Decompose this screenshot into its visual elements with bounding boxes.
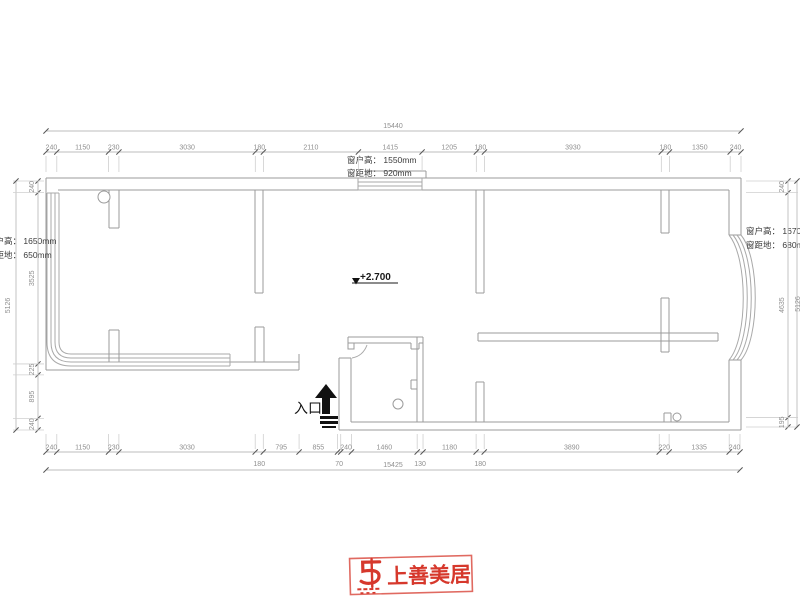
dimension-value: 1415 bbox=[382, 145, 398, 152]
dimension-value: 240 bbox=[46, 145, 58, 152]
elevation-triangle-icon bbox=[352, 278, 360, 285]
dimension-value: 4635 bbox=[779, 297, 786, 313]
elevation-marker: +2.700 bbox=[352, 272, 398, 285]
entrance-arrow-icon bbox=[315, 384, 337, 398]
dimension-value: 855 bbox=[312, 445, 324, 452]
dimension-value: 180 bbox=[475, 145, 487, 152]
dimension-value: 15425 bbox=[383, 462, 403, 469]
entrance-label: 入口 bbox=[294, 402, 322, 417]
window-annotations: 窗户高： 1550mm 窗距地： 920mm 窗户高： 1650mm 窗距地： … bbox=[0, 155, 800, 260]
dimension-value: 1205 bbox=[441, 145, 457, 152]
dimension-value: 15440 bbox=[383, 123, 403, 130]
entrance-marker: 入口 bbox=[294, 384, 338, 428]
floor-plan-drawing: 入口 +2.700 窗户高： 1550mm 窗距地： 920mm 窗户高： 16… bbox=[0, 0, 800, 600]
dimension-value: 180 bbox=[660, 145, 672, 152]
right-bow-window bbox=[729, 235, 755, 360]
dimension-value: 1150 bbox=[75, 145, 90, 152]
outer-walls bbox=[46, 171, 755, 430]
dimension-value: 230 bbox=[108, 145, 120, 152]
dimension-value: 795 bbox=[275, 445, 287, 452]
dimension-value: 240 bbox=[29, 418, 36, 430]
dimension-value: 895 bbox=[29, 391, 36, 403]
dimension-value: 240 bbox=[730, 145, 742, 152]
left-window-height-label: 窗户高： 1650mm bbox=[0, 236, 56, 246]
floor-plan-canvas: 入口 +2.700 窗户高： 1550mm 窗距地： 920mm 窗户高： 16… bbox=[0, 0, 800, 600]
logo-text: 上善美居 bbox=[387, 562, 472, 588]
logo-subtext-marks bbox=[357, 588, 379, 594]
right-window-sill-label: 窗距地： 680mm bbox=[746, 240, 800, 250]
dimension-value: 1335 bbox=[691, 445, 707, 452]
brand-logo: 上善美居 bbox=[350, 555, 473, 594]
dimension-value: 3030 bbox=[179, 445, 195, 452]
dimension-value: 3930 bbox=[565, 145, 581, 152]
dimension-value: 240 bbox=[29, 181, 36, 193]
dimension-value: 2110 bbox=[303, 145, 318, 152]
dimension-value: 240 bbox=[46, 445, 58, 452]
dimension-value: 1150 bbox=[75, 445, 90, 452]
door-leaf bbox=[348, 343, 354, 349]
left-window-sill-label: 窗距地： 650mm bbox=[0, 250, 52, 260]
dimension-value: 230 bbox=[108, 445, 120, 452]
dimension-value: 1180 bbox=[442, 445, 457, 452]
dimension-value: 3890 bbox=[564, 445, 580, 452]
dimension-value: 240 bbox=[779, 181, 786, 193]
dimension-value: 70 bbox=[335, 461, 343, 468]
dimension-value: 225 bbox=[29, 363, 36, 375]
fixture-circle bbox=[673, 413, 681, 421]
dimension-value: 240 bbox=[729, 445, 741, 452]
dimension-value: 180 bbox=[253, 461, 265, 468]
dimension-value: 1460 bbox=[377, 445, 393, 452]
fixture-circle bbox=[393, 399, 403, 409]
dimension-value: 220 bbox=[658, 445, 670, 452]
fixture-circle bbox=[98, 191, 110, 203]
dimension-value: 3030 bbox=[179, 145, 195, 152]
top-window bbox=[358, 178, 422, 190]
interior-partitions bbox=[98, 190, 718, 422]
top-window-height-label: 窗户高： 1550mm bbox=[347, 155, 416, 165]
elevation-value: +2.700 bbox=[360, 272, 391, 283]
logo-monogram-icon bbox=[361, 559, 381, 587]
dimension-value: 5126 bbox=[795, 296, 800, 312]
top-window-sill-label: 窗距地： 920mm bbox=[347, 168, 412, 178]
dimension-value: 1350 bbox=[692, 145, 708, 152]
dimension-value: 5126 bbox=[5, 298, 12, 314]
left-window-band bbox=[47, 193, 230, 366]
dimension-value: 180 bbox=[254, 145, 266, 152]
dimension-value: 240 bbox=[340, 445, 352, 452]
dimension-value: 180 bbox=[474, 461, 486, 468]
dimension-value: 3525 bbox=[29, 270, 36, 286]
dimension-value: 130 bbox=[414, 461, 426, 468]
entrance-hall bbox=[339, 337, 423, 430]
right-window-height-label: 窗户高： 1670mm bbox=[746, 226, 800, 236]
dimension-value: 195 bbox=[779, 416, 786, 428]
